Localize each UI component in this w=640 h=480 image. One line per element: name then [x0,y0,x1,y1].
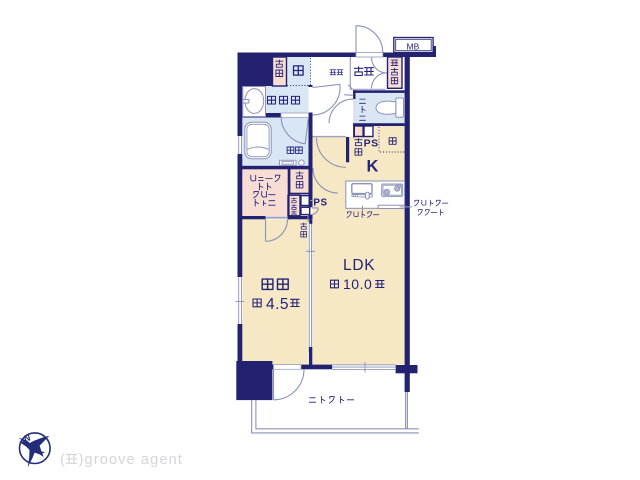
svg-text:MB: MB [407,41,420,51]
svg-text:PS: PS [313,197,327,208]
svg-text:)groove agent: )groove agent [79,452,183,468]
svg-text:LDK: LDK [343,257,375,274]
svg-text:4.5: 4.5 [266,296,289,313]
svg-text:PS: PS [364,137,379,149]
svg-text:10.0: 10.0 [343,276,372,292]
svg-text:(: ( [60,452,66,468]
svg-text:K: K [367,158,379,176]
